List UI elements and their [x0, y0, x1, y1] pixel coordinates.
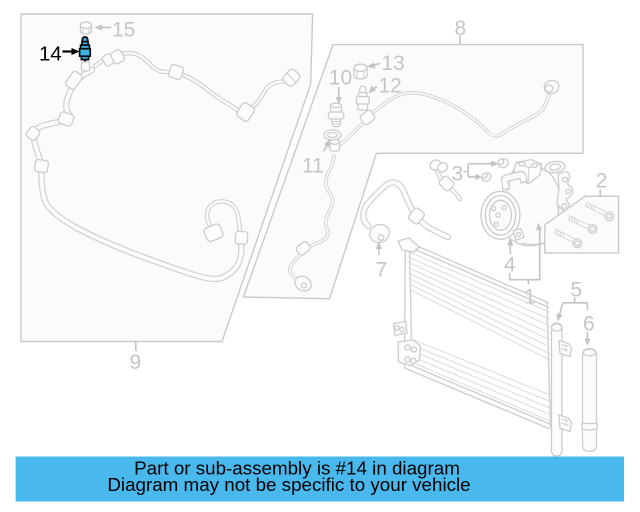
svg-text:7: 7 [376, 259, 388, 282]
svg-text:14: 14 [39, 43, 62, 66]
svg-text:9: 9 [130, 351, 142, 374]
svg-text:10: 10 [329, 67, 352, 90]
svg-text:3: 3 [452, 163, 464, 186]
svg-text:13: 13 [382, 52, 405, 75]
svg-text:12: 12 [379, 75, 402, 98]
svg-text:8: 8 [455, 17, 467, 40]
svg-text:2: 2 [596, 170, 608, 193]
svg-text:5: 5 [570, 278, 582, 301]
svg-text:11: 11 [302, 155, 324, 178]
svg-text:15: 15 [112, 19, 135, 42]
svg-text:6: 6 [583, 313, 595, 336]
svg-text:Diagram may not be specific to: Diagram may not be specific to your vehi… [107, 474, 470, 495]
